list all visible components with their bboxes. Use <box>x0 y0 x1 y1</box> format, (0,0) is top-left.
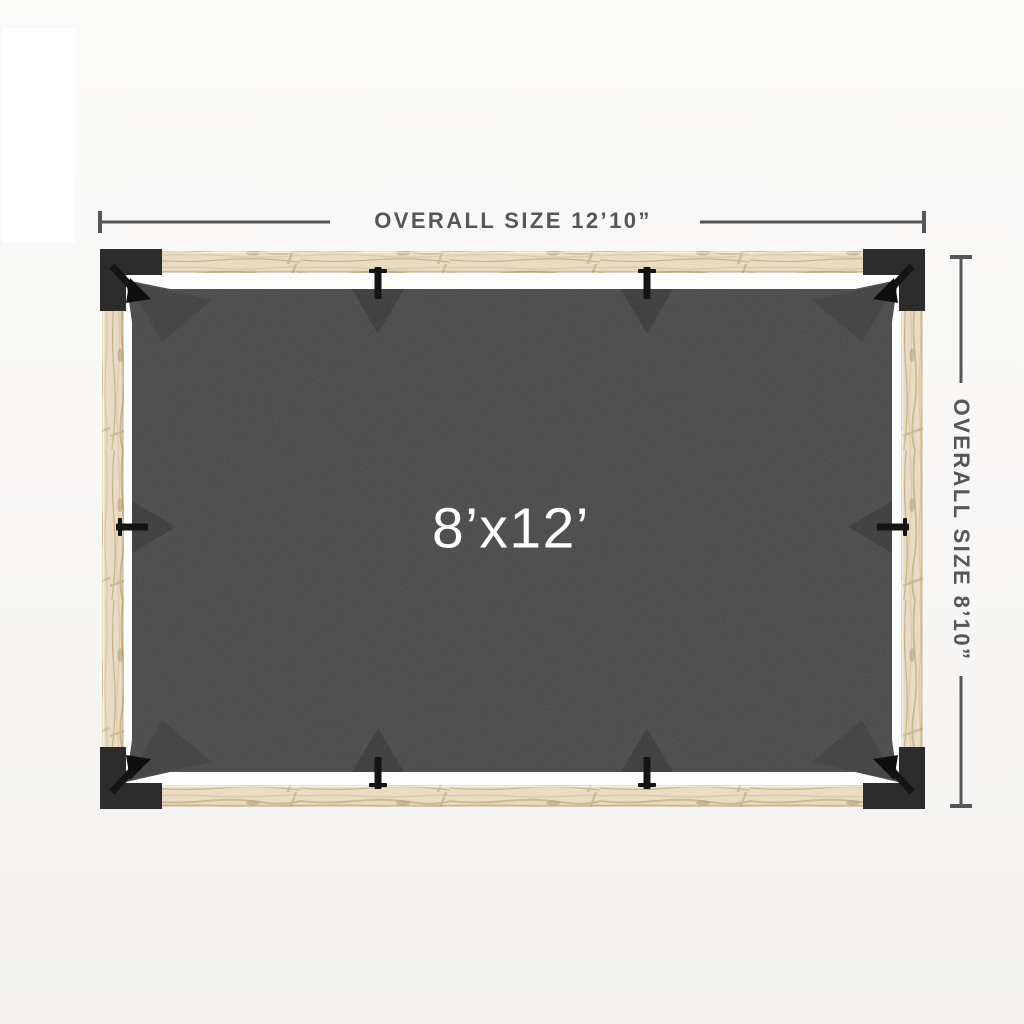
right-dimension-label: OVERALL SIZE 8’10” <box>948 399 974 662</box>
wood-beam-bottom <box>100 785 925 807</box>
canvas-size-label: 8’x12’ <box>432 495 590 561</box>
wood-beam-top <box>100 251 925 273</box>
pergola-diagram: OVERALL SIZE 12’10” OVERALL SIZE 8’10” 8… <box>0 0 1024 1024</box>
top-dimension-label: OVERALL SIZE 12’10” <box>100 208 926 234</box>
